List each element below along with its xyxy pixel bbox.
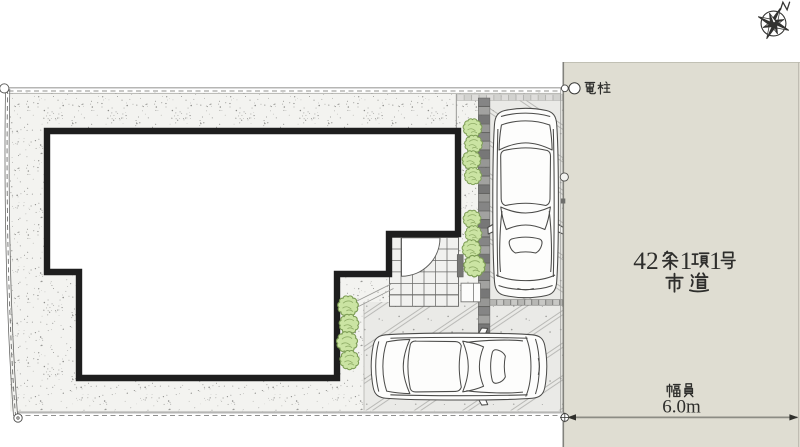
svg-text:1: 1 [709, 246, 722, 275]
svg-text:1: 1 [680, 246, 693, 275]
svg-text:42: 42 [633, 246, 659, 275]
svg-text:6.0m: 6.0m [662, 397, 701, 418]
